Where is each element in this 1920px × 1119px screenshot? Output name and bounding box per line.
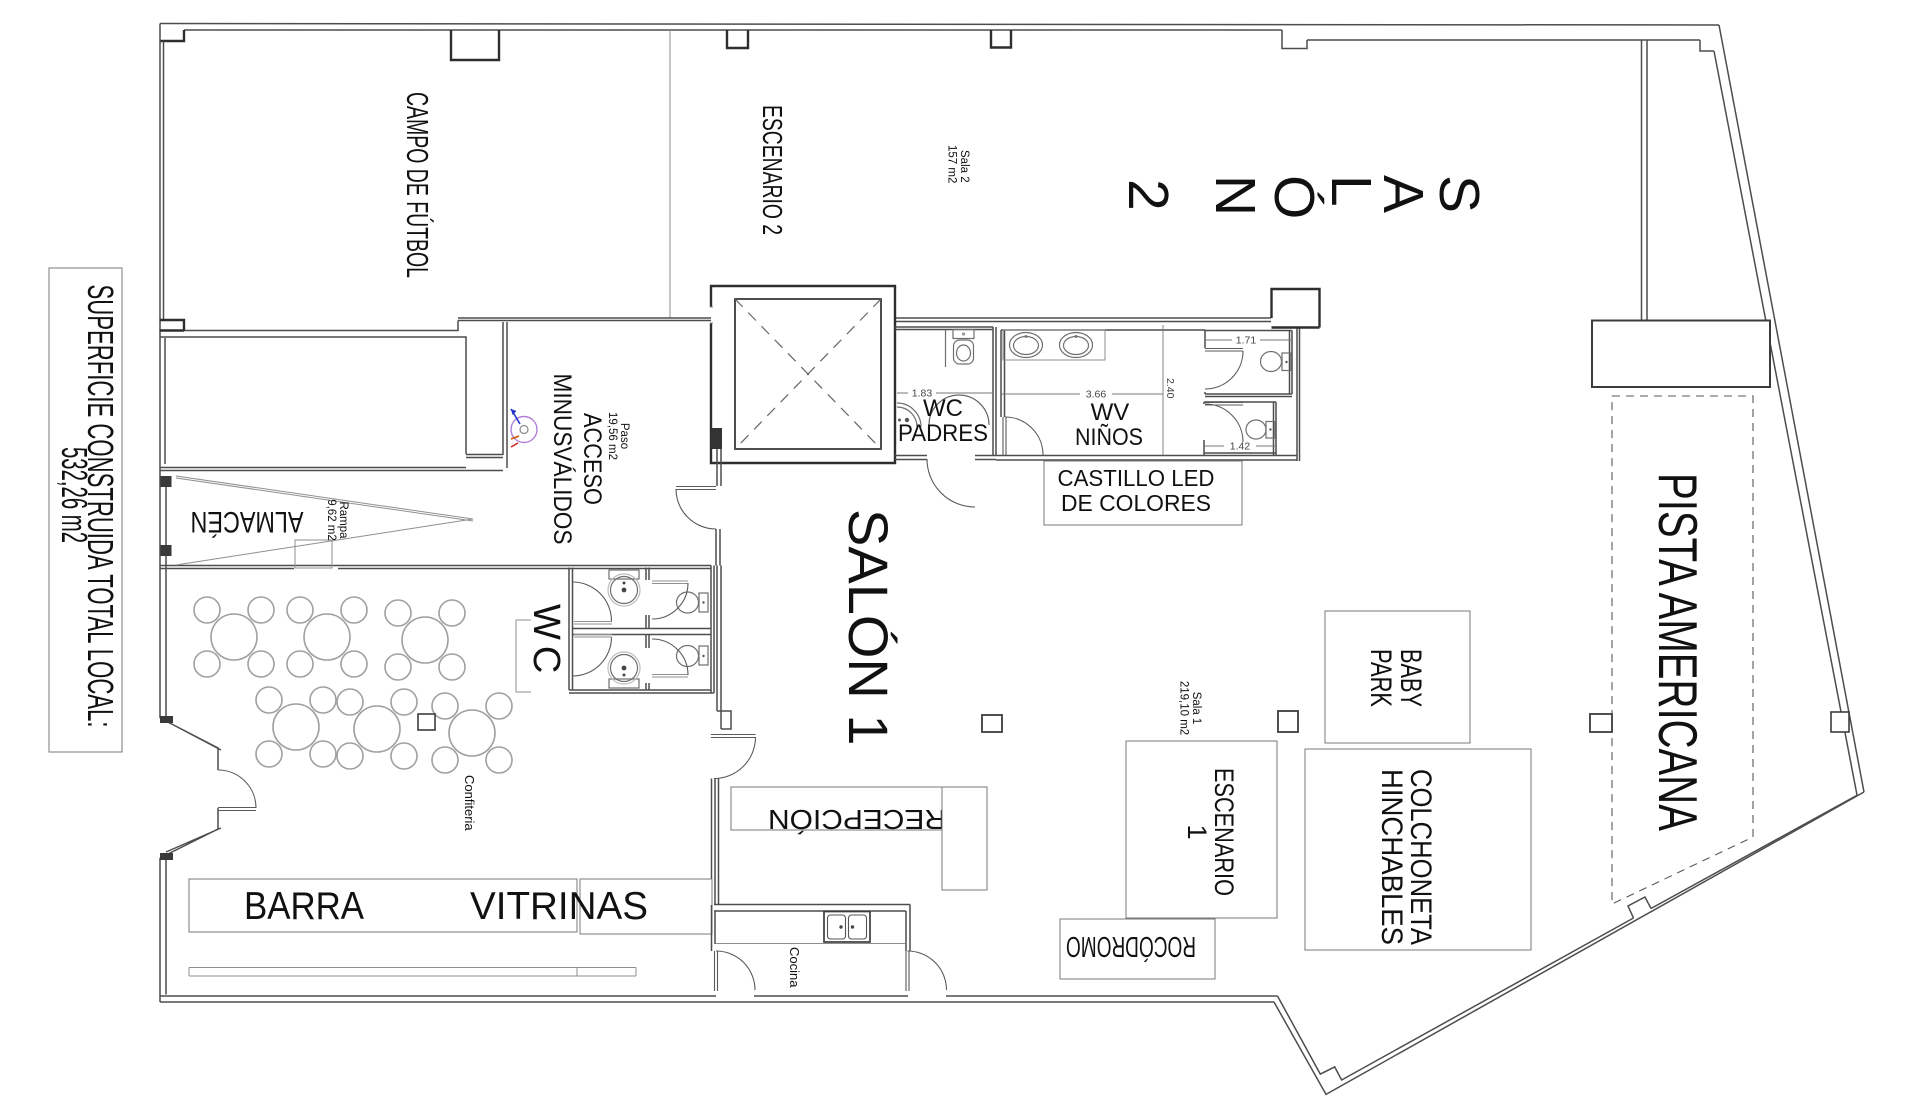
svg-text:BARRA: BARRA xyxy=(244,885,364,928)
svg-text:Confiteria: Confiteria xyxy=(462,775,477,831)
svg-text:PADRES: PADRES xyxy=(898,420,988,447)
svg-text:WC: WC xyxy=(525,604,567,679)
svg-text:ROCÓDROMO: ROCÓDROMO xyxy=(1066,930,1196,963)
svg-text:CASTILLO LED: CASTILLO LED xyxy=(1058,465,1215,491)
svg-text:ESCENARIO 2: ESCENARIO 2 xyxy=(757,105,788,235)
svg-text:Rampa9,62 m2: Rampa9,62 m2 xyxy=(325,499,349,541)
svg-text:S: S xyxy=(1427,175,1491,213)
svg-text:2.40: 2.40 xyxy=(1164,378,1176,399)
svg-text:ALMACÉN: ALMACÉN xyxy=(191,505,304,538)
svg-text:Cocina: Cocina xyxy=(787,947,802,988)
svg-text:Sala 2157 m2: Sala 2157 m2 xyxy=(946,145,971,183)
svg-text:N: N xyxy=(1203,175,1267,216)
svg-text:WC: WC xyxy=(923,395,963,422)
svg-text:VITRINAS: VITRINAS xyxy=(470,885,648,928)
svg-text:BABYPARK: BABYPARK xyxy=(1364,649,1427,707)
svg-text:WV: WV xyxy=(1091,399,1130,426)
svg-text:SALÓN 1: SALÓN 1 xyxy=(837,509,900,746)
svg-text:CAMPO DE FÚTBOL: CAMPO DE FÚTBOL xyxy=(400,92,435,278)
svg-text:PISTA AMERICANA: PISTA AMERICANA xyxy=(1647,473,1709,831)
svg-text:2: 2 xyxy=(1116,179,1180,211)
svg-text:Ó: Ó xyxy=(1262,175,1326,219)
svg-text:COLCHONETAHINCHABLES: COLCHONETAHINCHABLES xyxy=(1375,769,1437,945)
svg-text:L: L xyxy=(1319,175,1383,207)
svg-text:1.42: 1.42 xyxy=(1230,441,1251,453)
svg-text:NIÑOS: NIÑOS xyxy=(1075,424,1143,451)
svg-text:1.71: 1.71 xyxy=(1236,335,1257,347)
svg-text:RECEPCIÓN: RECEPCIÓN xyxy=(768,804,946,835)
svg-text:DE COLORES: DE COLORES xyxy=(1061,490,1211,516)
